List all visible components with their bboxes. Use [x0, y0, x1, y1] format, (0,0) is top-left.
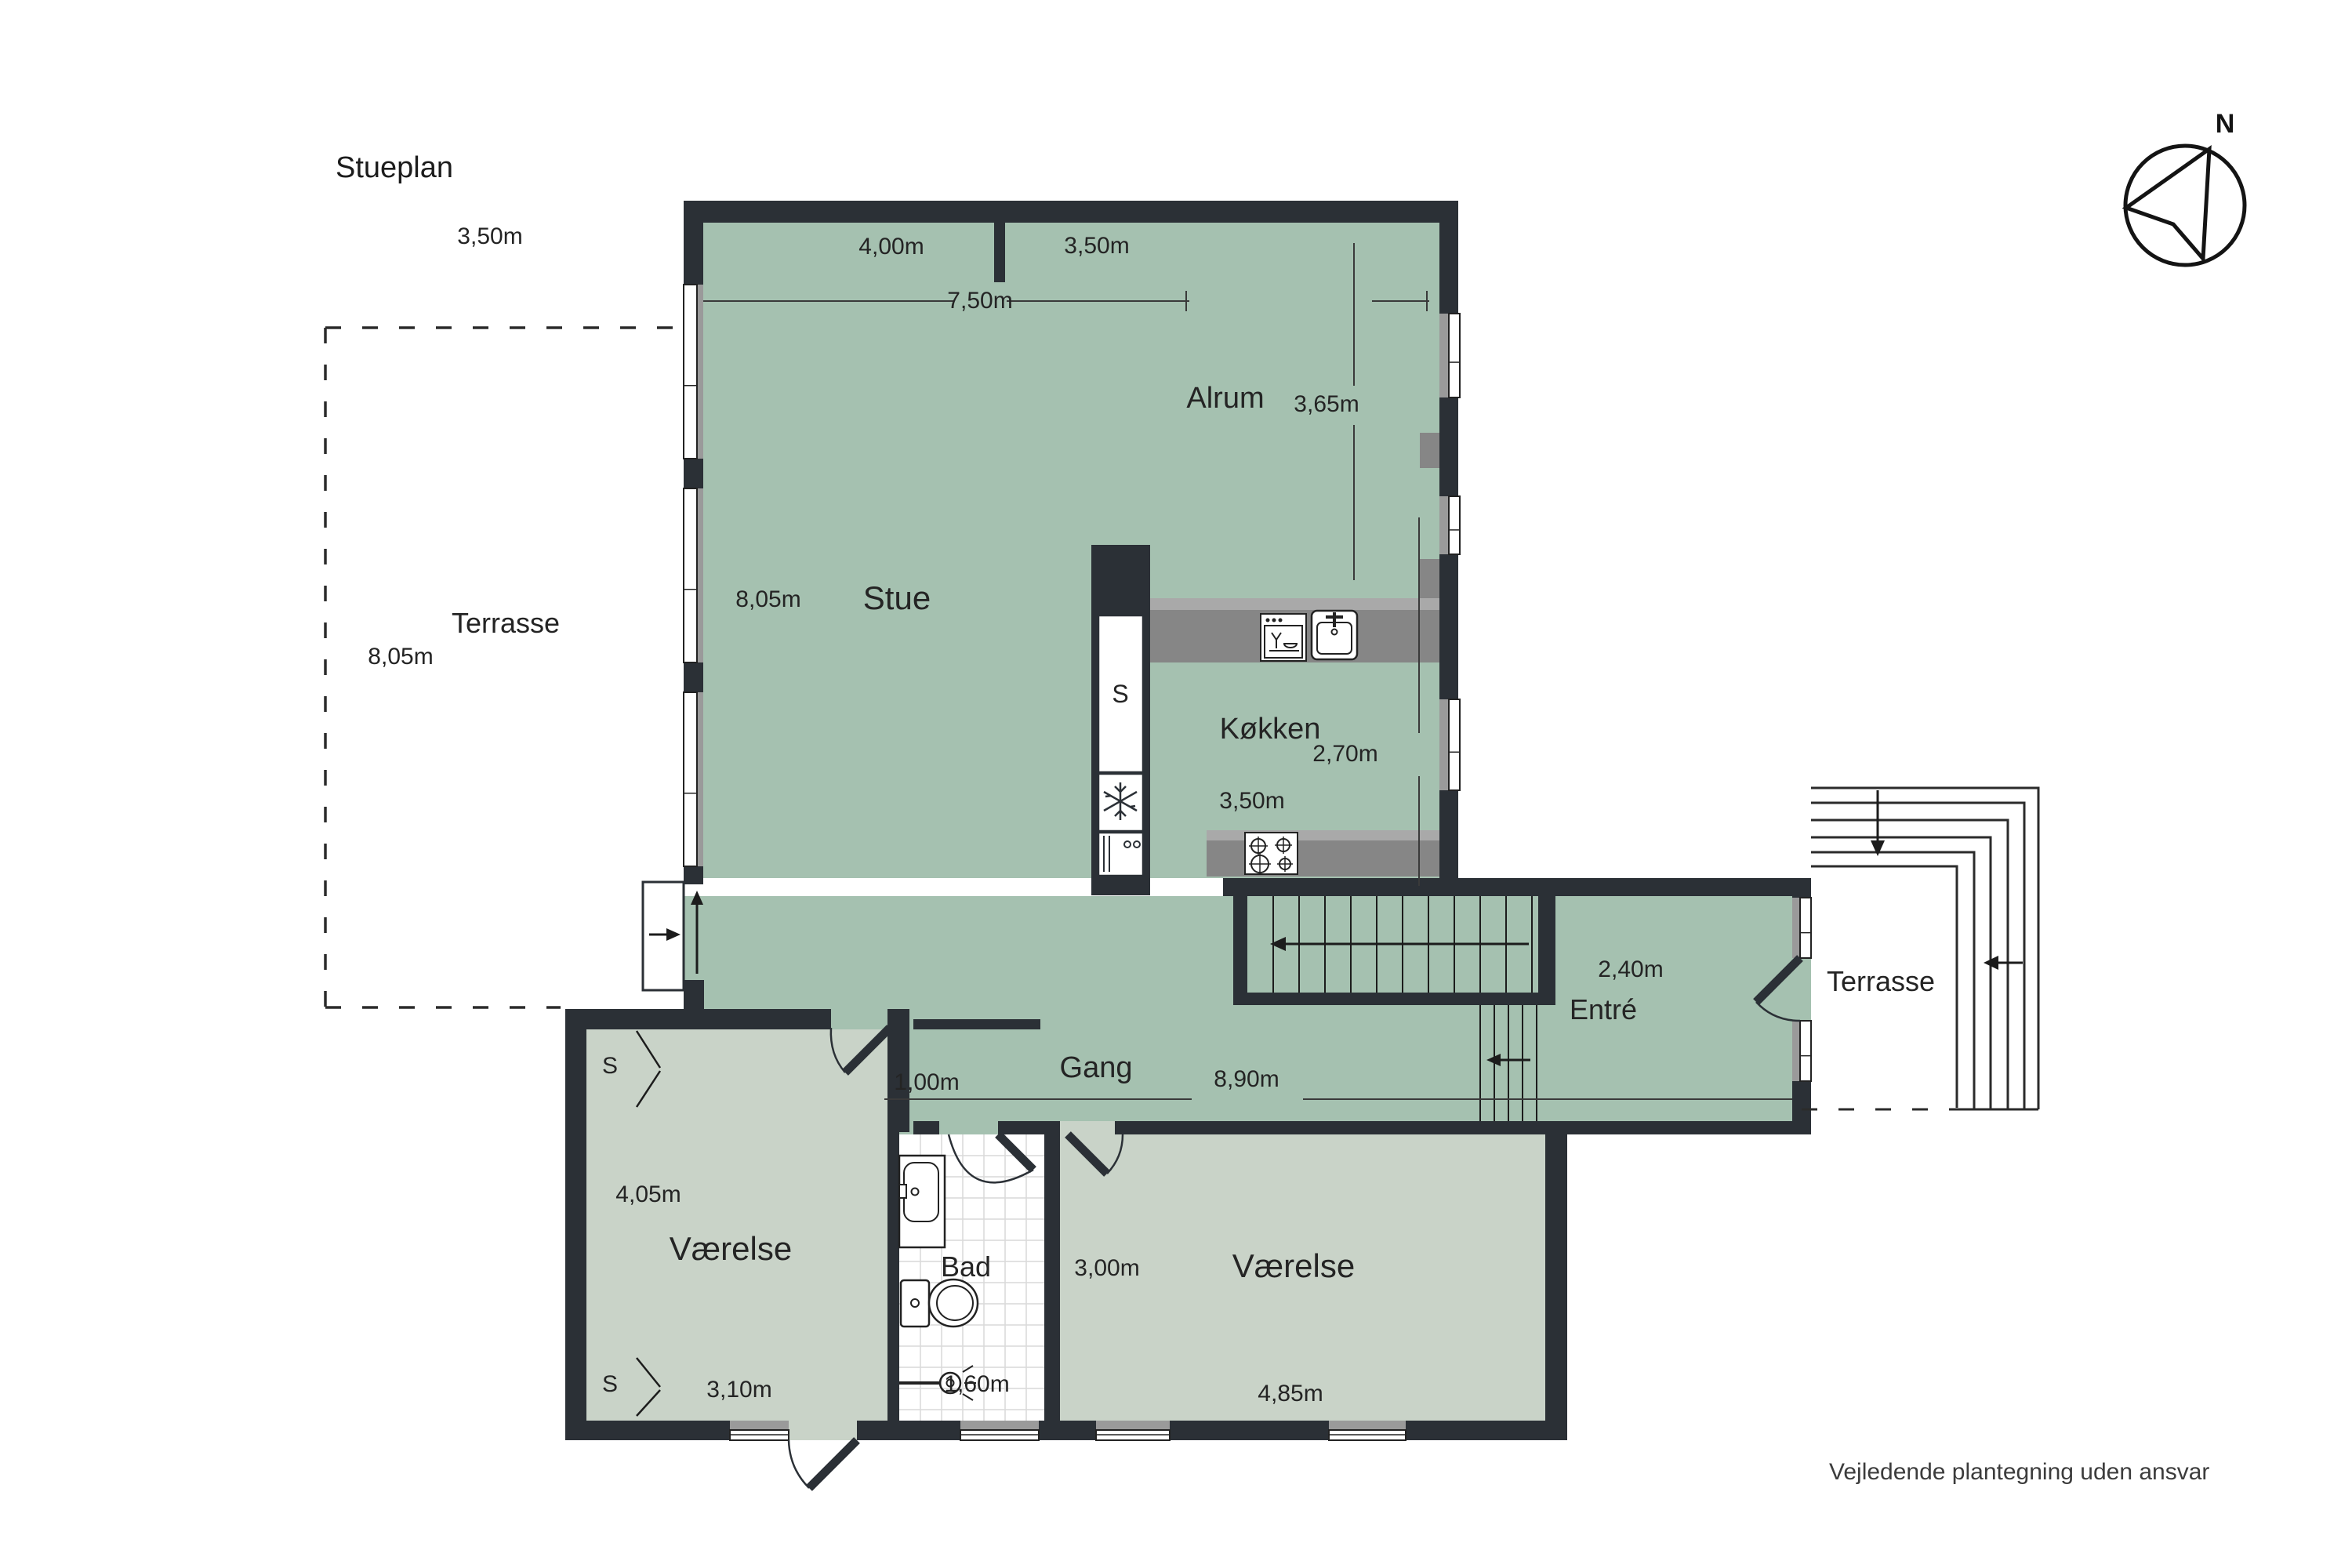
total-width-dim: 7,50m	[947, 289, 1012, 313]
stue-width-dim: 4,00m	[858, 235, 924, 259]
terrace-step-arrows	[1871, 790, 2023, 970]
closet-label-1: S	[602, 1054, 618, 1078]
compass-north-icon	[2125, 146, 2245, 265]
kitchen-sink-icon	[1312, 611, 1357, 659]
dishwasher-icon	[1261, 614, 1306, 661]
island-closet-label: S	[1112, 681, 1128, 706]
room-label-alrum: Alrum	[1186, 383, 1264, 413]
bath-sink-icon	[899, 1156, 945, 1247]
room-label-vaerelse-left: Værelse	[670, 1232, 792, 1265]
alrum-width-dim: 3,50m	[1064, 234, 1129, 258]
west-terrace-label: Terrasse	[452, 609, 560, 637]
bad-width-dim: 1,60m	[944, 1373, 1009, 1396]
room-label-stue: Stue	[863, 582, 931, 615]
kokken-height-dim: 2,70m	[1312, 742, 1377, 766]
floorplan-page: Stueplan 3,50m Terrasse 8,05m 4,00m 3,50…	[0, 0, 2352, 1568]
kokken-width-dim: 3,50m	[1219, 789, 1284, 813]
right-bedroom-height-dim: 3,00m	[1074, 1257, 1139, 1280]
west-terrace-width-dim: 3,50m	[457, 225, 522, 249]
toilet-icon	[901, 1279, 978, 1327]
east-terrace-label: Terrasse	[1827, 967, 1935, 996]
left-bedroom-height-dim: 4,05m	[615, 1183, 681, 1207]
west-terrace-height-dim: 8,05m	[368, 645, 433, 669]
entre-door-dim: 2,40m	[1598, 958, 1663, 982]
right-bedroom-width-dim: 4,85m	[1258, 1382, 1323, 1406]
door-bedroom-exterior	[789, 1440, 857, 1488]
compass-north-letter: N	[2216, 111, 2235, 137]
stove-burners-icon	[1245, 833, 1298, 874]
room-label-vaerelse-right: Værelse	[1232, 1250, 1355, 1283]
page-title: Stueplan	[336, 153, 453, 183]
stue-height-dim: 8,05m	[735, 588, 800, 612]
left-bedroom-width-dim: 3,10m	[706, 1378, 771, 1402]
room-label-gang: Gang	[1060, 1053, 1133, 1083]
generated-geometry	[325, 201, 2038, 1440]
floorplan-drawing	[0, 0, 2352, 1568]
alrum-height-dim: 3,65m	[1294, 393, 1359, 416]
gang-door-dim: 1,00m	[894, 1071, 959, 1094]
room-label-entre: Entré	[1570, 996, 1637, 1024]
room-label-bad: Bad	[941, 1253, 991, 1281]
gang-length-dim: 8,90m	[1214, 1068, 1279, 1091]
closet-label-2: S	[602, 1373, 618, 1396]
disclaimer-text: Vejledende plantegning uden ansvar	[1829, 1461, 2209, 1484]
room-label-kokken: Køkken	[1220, 714, 1321, 744]
